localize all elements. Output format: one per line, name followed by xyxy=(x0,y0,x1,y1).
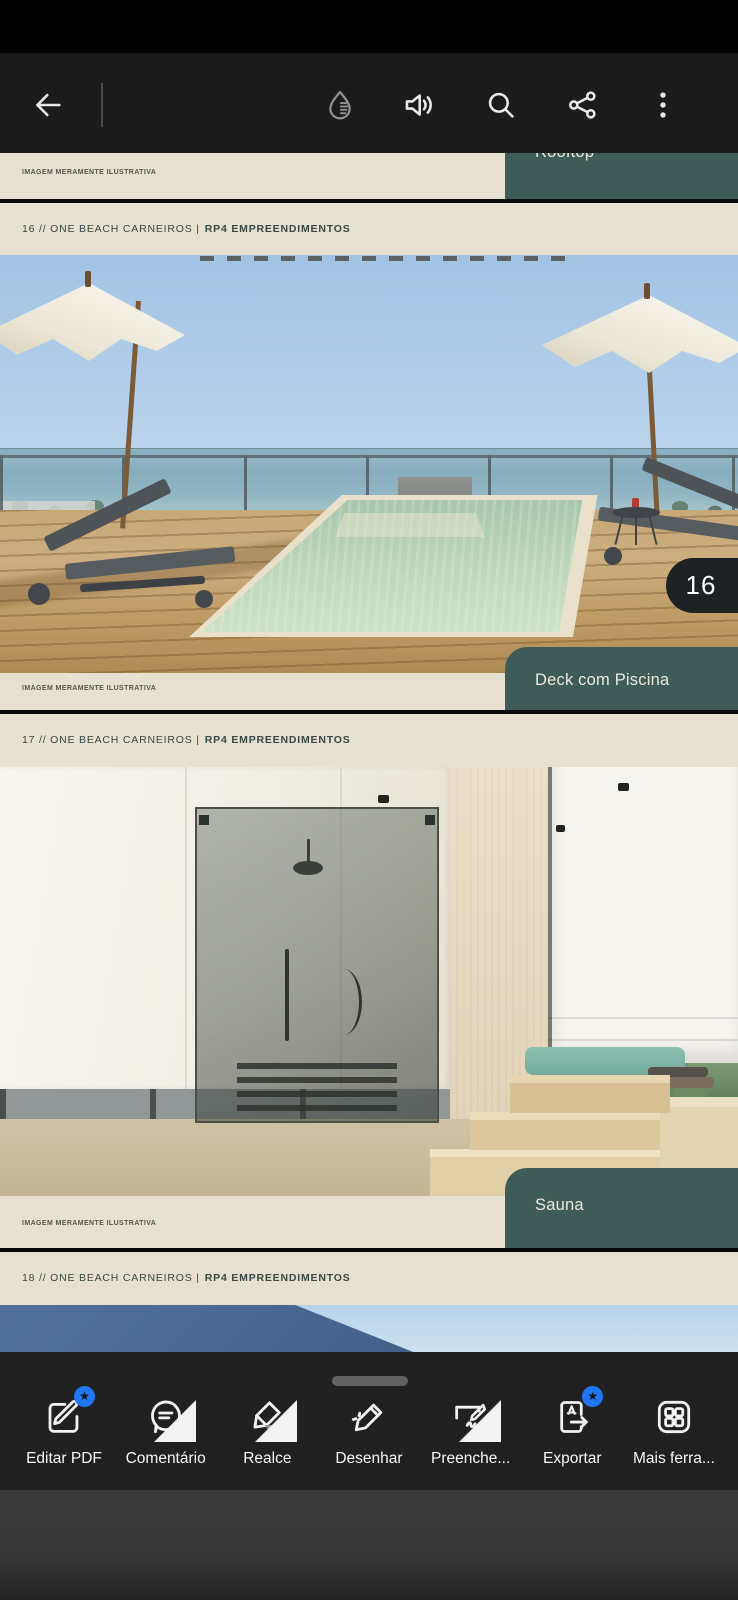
tools-row: ★ Editar PDF Comentário xyxy=(0,1392,738,1468)
page-number-badge[interactable]: 16 xyxy=(666,558,738,613)
photo-shower-hose xyxy=(325,969,362,1035)
tool-label: Exportar xyxy=(543,1450,602,1468)
phone-screen: IMAGEM MERAMENTE ILUSTRATIVA Rooftop 16 … xyxy=(0,0,738,1600)
photo-ceiling-spot xyxy=(618,783,629,791)
pdf-document-area[interactable]: IMAGEM MERAMENTE ILUSTRATIVA Rooftop 16 … xyxy=(0,153,738,1352)
photo-ceiling-spot xyxy=(378,795,389,803)
page-18-header-prefix: 18 // ONE BEACH CARNEIROS | xyxy=(22,1272,200,1284)
tool-label: Preenche... xyxy=(431,1450,510,1468)
page-16-label: Deck com Piscina xyxy=(505,671,738,690)
overflow-menu-icon[interactable] xyxy=(643,85,683,125)
tool-edit-pdf[interactable]: ★ Editar PDF xyxy=(22,1392,106,1468)
pdf-page-18[interactable]: 18 // ONE BEACH CARNEIROS |RP4 EMPREENDI… xyxy=(0,1252,738,1352)
photo-shower-slats xyxy=(237,1063,397,1115)
sauna-photo[interactable] xyxy=(0,767,738,1196)
edit-pdf-icon: ★ xyxy=(40,1392,88,1442)
photo-side-table xyxy=(612,507,660,547)
photo-shade-fold xyxy=(548,1039,738,1041)
read-aloud-icon[interactable] xyxy=(399,85,439,125)
page-16-label-box: Deck com Piscina xyxy=(505,647,738,710)
highlight-icon xyxy=(243,1392,291,1442)
page-17-header-brand: RP4 EMPREENDIMENTOS xyxy=(205,734,351,746)
tool-label: Comentário xyxy=(126,1450,206,1468)
system-nav-bar xyxy=(0,1490,738,1600)
lounger-left-wheel xyxy=(28,583,50,605)
photo-pool-step xyxy=(335,513,485,537)
photo-shower-enclosure xyxy=(195,807,439,1123)
fill-sign-icon xyxy=(447,1392,495,1442)
tool-comment[interactable]: Comentário xyxy=(124,1392,208,1468)
page-18-photo-top[interactable] xyxy=(0,1305,738,1352)
search-icon[interactable] xyxy=(481,85,521,125)
pool-deck-photo[interactable] xyxy=(0,255,738,673)
photo-shower-bar xyxy=(285,949,289,1041)
photo-roman-shade xyxy=(548,767,738,1065)
tool-more-tools[interactable]: Mais ferra... xyxy=(632,1392,716,1468)
share-icon[interactable] xyxy=(563,85,603,125)
lounger-right-wheel xyxy=(604,547,622,565)
tool-highlight[interactable]: Realce xyxy=(225,1392,309,1468)
export-pdf-icon: ★ xyxy=(548,1392,596,1442)
tool-draw[interactable]: Desenhar xyxy=(327,1392,411,1468)
lounger-left-wheel xyxy=(195,590,213,608)
tool-label: Mais ferra... xyxy=(633,1450,715,1468)
pdf-page-16[interactable]: 16 // ONE BEACH CARNEIROS |RP4 EMPREENDI… xyxy=(0,203,738,710)
tool-label: Editar PDF xyxy=(26,1450,102,1468)
app-toolbar xyxy=(0,53,738,153)
bottom-tools-sheet: ★ Editar PDF Comentário xyxy=(0,1352,738,1490)
pdf-page-15-bottom[interactable]: IMAGEM MERAMENTE ILUSTRATIVA Rooftop xyxy=(0,153,738,199)
photo-step xyxy=(470,1112,660,1150)
premium-star-badge: ★ xyxy=(582,1386,603,1407)
photo-ceiling-spot xyxy=(556,825,565,832)
umbrella-left-finial xyxy=(85,271,91,287)
drag-handle[interactable] xyxy=(332,1376,408,1386)
toolbar-divider xyxy=(101,83,103,127)
page-16-header: 16 // ONE BEACH CARNEIROS |RP4 EMPREENDI… xyxy=(22,223,351,235)
page-17-label-box: Sauna xyxy=(505,1168,738,1248)
draw-icon xyxy=(345,1392,393,1442)
back-arrow-icon[interactable] xyxy=(28,85,68,125)
photo-shade-fold xyxy=(548,1017,738,1019)
more-tools-icon xyxy=(650,1392,698,1442)
page-17-label: Sauna xyxy=(505,1196,738,1215)
comment-icon xyxy=(142,1392,190,1442)
page-18-header-brand: RP4 EMPREENDIMENTOS xyxy=(205,1272,351,1284)
photo-roof-edge xyxy=(200,256,565,261)
page-16-header-brand: RP4 EMPREENDIMENTOS xyxy=(205,223,351,235)
page-17-caption: IMAGEM MERAMENTE ILUSTRATIVA xyxy=(22,1220,156,1227)
tool-fill-sign[interactable]: Preenche... xyxy=(429,1392,513,1468)
tool-label: Realce xyxy=(243,1450,291,1468)
pdf-page-17[interactable]: 17 // ONE BEACH CARNEIROS |RP4 EMPREENDI… xyxy=(0,714,738,1248)
page-16-caption: IMAGEM MERAMENTE ILUSTRATIVA xyxy=(22,685,156,692)
tool-export[interactable]: ★ Exportar xyxy=(530,1392,614,1468)
page-17-header: 17 // ONE BEACH CARNEIROS |RP4 EMPREENDI… xyxy=(22,734,351,746)
page-15-label: Rooftop xyxy=(505,153,738,162)
tool-label: Desenhar xyxy=(335,1450,402,1468)
page-16-header-prefix: 16 // ONE BEACH CARNEIROS | xyxy=(22,223,200,235)
umbrella-right-finial xyxy=(644,283,650,299)
page-18-header: 18 // ONE BEACH CARNEIROS |RP4 EMPREENDI… xyxy=(22,1272,351,1284)
photo-blind-seam xyxy=(185,767,187,1089)
liquid-mode-icon[interactable] xyxy=(320,85,360,125)
page-15-label-box: Rooftop xyxy=(505,153,738,199)
photo-step xyxy=(510,1075,670,1113)
page-15-caption: IMAGEM MERAMENTE ILUSTRATIVA xyxy=(22,169,156,176)
premium-star-badge: ★ xyxy=(74,1386,95,1407)
status-bar xyxy=(0,0,738,53)
page-17-header-prefix: 17 // ONE BEACH CARNEIROS | xyxy=(22,734,200,746)
